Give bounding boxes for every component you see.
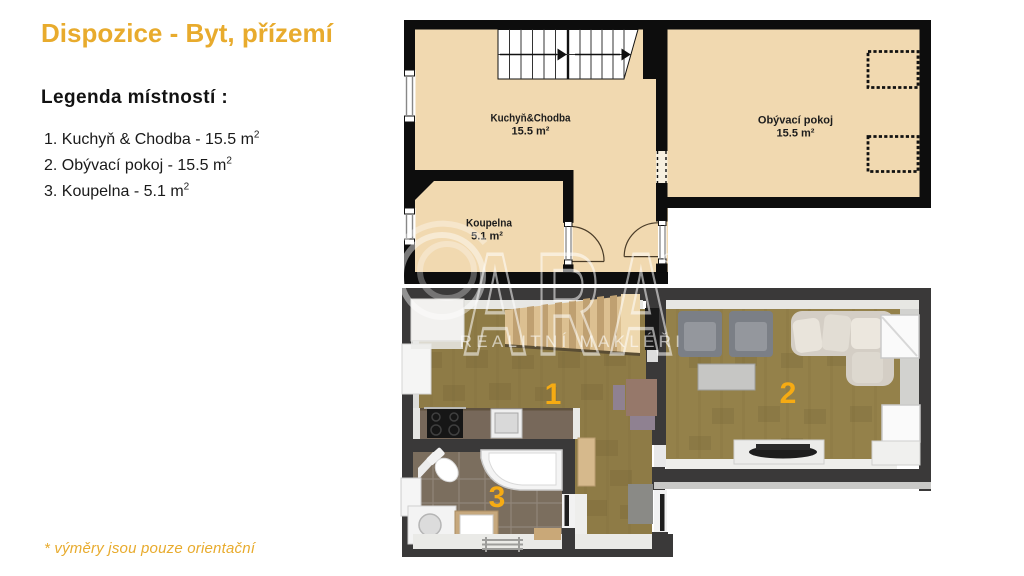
svg-text:Obývací pokoj: Obývací pokoj xyxy=(758,115,833,127)
svg-text:2: 2 xyxy=(780,377,797,410)
svg-text:15.5 m²: 15.5 m² xyxy=(777,128,815,140)
svg-text:3: 3 xyxy=(489,481,506,514)
svg-text:15.5 m²: 15.5 m² xyxy=(512,126,550,138)
svg-text:ARA: ARA xyxy=(463,223,682,385)
svg-text:REALITNÍ MAKLÉŘI: REALITNÍ MAKLÉŘI xyxy=(460,332,685,351)
svg-text:Kuchyň&Chodba: Kuchyň&Chodba xyxy=(491,113,572,125)
